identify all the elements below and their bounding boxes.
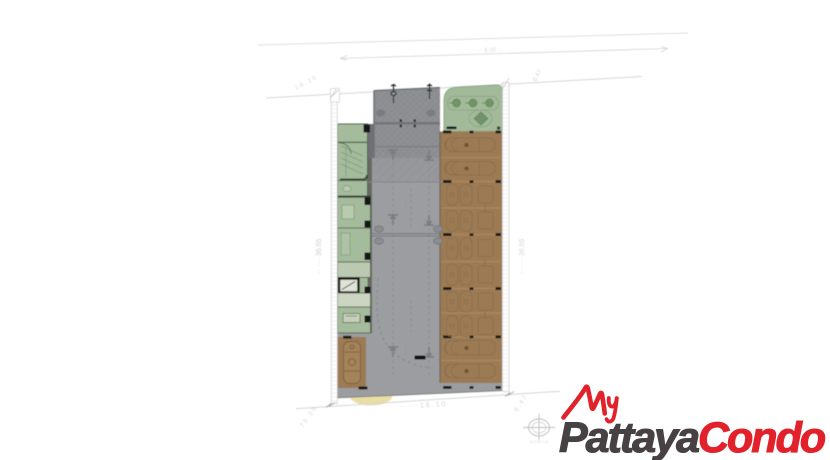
svg-text:· ··· ····: · ··· ···· (403, 198, 408, 213)
svg-text:·· ···· 36.65: ·· ···· 36.65 (316, 239, 323, 275)
svg-text:NORTH: NORTH (529, 440, 549, 446)
svg-text:PattayaCondo: PattayaCondo (559, 414, 825, 460)
svg-text:·· ·····: ·· ····· (403, 343, 408, 355)
svg-text:·· ···· 36.65: ·· ···· 36.65 (519, 239, 526, 275)
